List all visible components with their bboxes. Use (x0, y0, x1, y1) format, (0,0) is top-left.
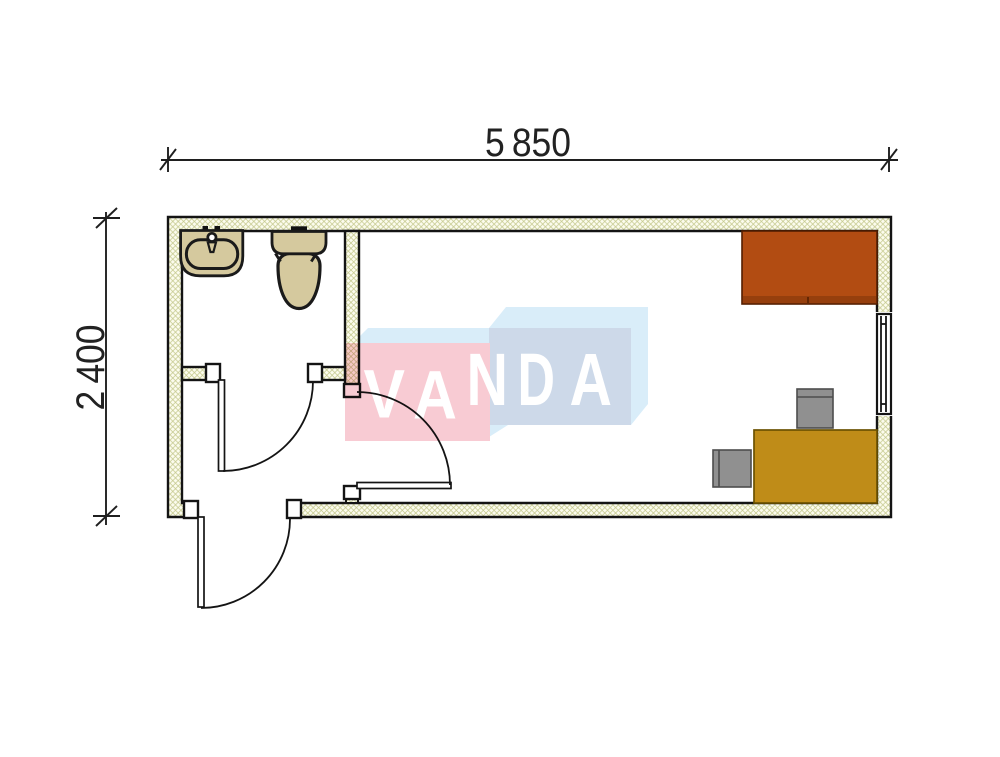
svg-text:A: A (570, 338, 613, 421)
svg-text:D: D (518, 338, 556, 421)
svg-text:2 400: 2 400 (69, 325, 113, 411)
svg-text:5 850: 5 850 (485, 121, 571, 165)
svg-text:V: V (364, 356, 406, 433)
svg-text:N: N (467, 338, 509, 421)
svg-text:A: A (413, 357, 457, 434)
